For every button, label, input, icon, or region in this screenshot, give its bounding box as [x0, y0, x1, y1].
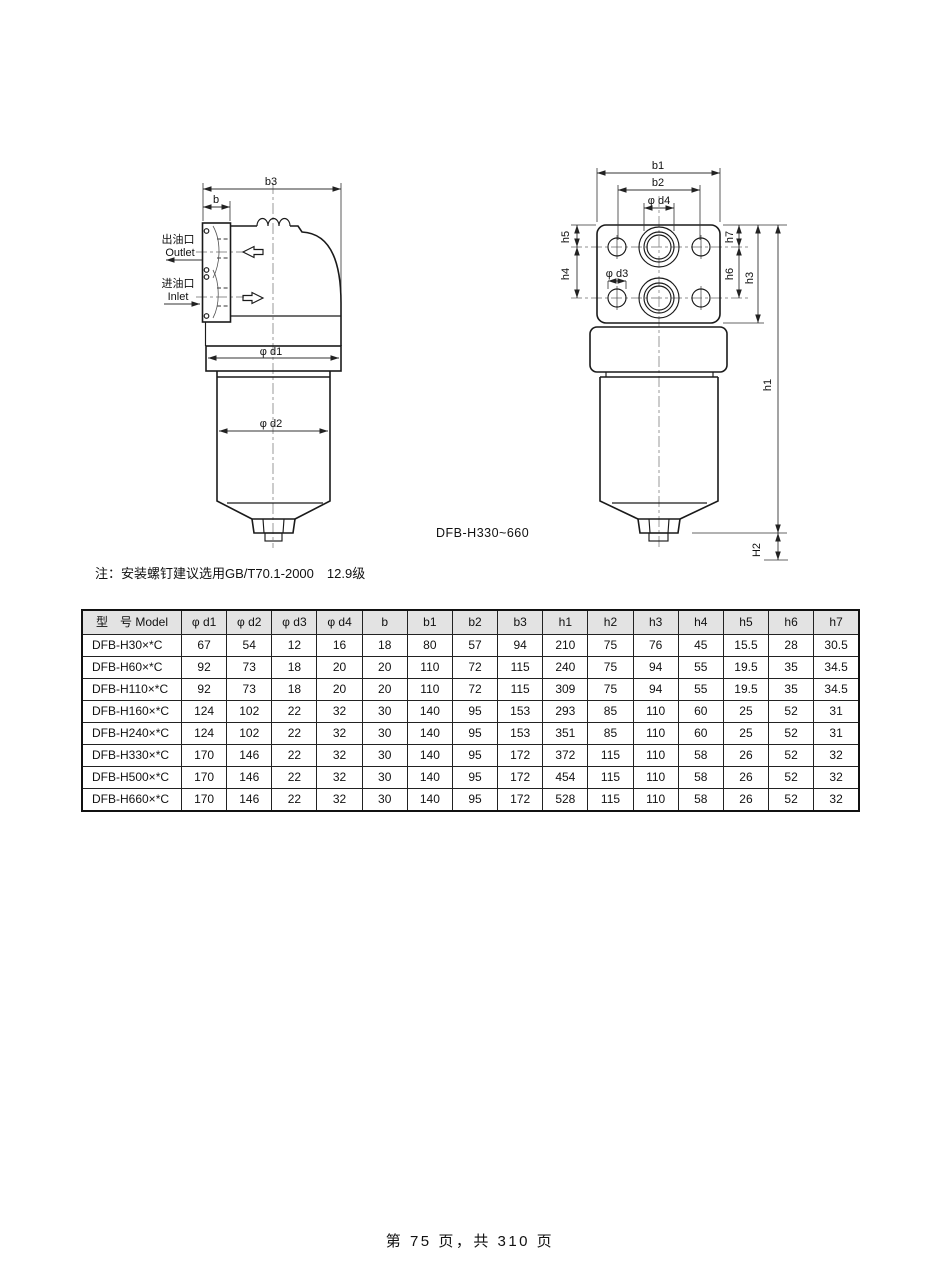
value-cell: 140 — [407, 789, 452, 812]
value-cell: 67 — [182, 635, 227, 657]
value-cell: 110 — [633, 789, 678, 812]
value-cell: 25 — [723, 701, 768, 723]
dim-label-b1: b1 — [652, 160, 664, 172]
value-cell: 95 — [452, 745, 497, 767]
value-cell: 57 — [452, 635, 497, 657]
value-cell: 75 — [588, 679, 633, 701]
value-cell: 146 — [227, 767, 272, 789]
value-cell: 12 — [272, 635, 317, 657]
figure-caption: DFB-H330~660 — [436, 526, 529, 540]
value-cell: 115 — [588, 789, 633, 812]
table-row: DFB-H30×*C675412161880579421075764515.52… — [82, 635, 859, 657]
col-header-b3: b3 — [498, 610, 543, 635]
value-cell: 75 — [588, 657, 633, 679]
value-cell: 309 — [543, 679, 588, 701]
value-cell: 18 — [362, 635, 407, 657]
head-front — [590, 327, 727, 372]
value-cell: 92 — [182, 657, 227, 679]
bolt-hole-icon — [204, 229, 209, 234]
dim-label-b2: b2 — [652, 177, 664, 189]
table-row: DFB-H500×*C17014622323014095172454115110… — [82, 767, 859, 789]
dim-label-h6: h6 — [724, 268, 736, 280]
value-cell: 26 — [723, 789, 768, 812]
value-cell: 30 — [362, 701, 407, 723]
value-cell: 170 — [182, 745, 227, 767]
value-cell: 140 — [407, 723, 452, 745]
value-cell: 54 — [227, 635, 272, 657]
col-header-d1: φ d1 — [182, 610, 227, 635]
value-cell: 32 — [317, 767, 362, 789]
value-cell: 210 — [543, 635, 588, 657]
value-cell: 95 — [452, 723, 497, 745]
table-row: DFB-H110×*C92731820201107211530975945519… — [82, 679, 859, 701]
value-cell: 31 — [814, 723, 859, 745]
value-cell: 28 — [769, 635, 814, 657]
value-cell: 102 — [227, 723, 272, 745]
port-bore-arcs — [213, 226, 219, 318]
dim-label-h4: h4 — [560, 268, 572, 280]
model-cell: DFB-H330×*C — [82, 745, 182, 767]
inlet-label-en: Inlet — [168, 291, 189, 303]
value-cell: 240 — [543, 657, 588, 679]
mounting-note: 注：安装螺钉建议选用GB/T70.1-2000 12.9级 — [95, 563, 365, 582]
col-header-d4: φ d4 — [317, 610, 362, 635]
value-cell: 34.5 — [814, 657, 859, 679]
model-cell: DFB-H110×*C — [82, 679, 182, 701]
top-and-front-view: b1 b2 φ d4 h5 h4 φ d3 h7 h6 — [560, 160, 788, 560]
col-header-h3: h3 — [633, 610, 678, 635]
value-cell: 30 — [362, 767, 407, 789]
dim-label-h5: h5 — [560, 231, 572, 243]
value-cell: 140 — [407, 767, 452, 789]
outlet-label-en: Outlet — [165, 247, 194, 259]
table-head: 型 号 Modelφ d1φ d2φ d3φ d4bb1b2b3h1h2h3h4… — [82, 610, 859, 635]
dim-label-d3: φ d3 — [606, 268, 628, 280]
value-cell: 153 — [498, 701, 543, 723]
value-cell: 293 — [543, 701, 588, 723]
value-cell: 30 — [362, 745, 407, 767]
value-cell: 19.5 — [723, 679, 768, 701]
value-cell: 110 — [633, 723, 678, 745]
col-header-b: b — [362, 610, 407, 635]
model-cell: DFB-H500×*C — [82, 767, 182, 789]
value-cell: 34.5 — [814, 679, 859, 701]
value-cell: 58 — [678, 767, 723, 789]
value-cell: 30 — [362, 789, 407, 812]
model-cell: DFB-H660×*C — [82, 789, 182, 812]
drain-plug-nub — [265, 533, 282, 541]
value-cell: 172 — [498, 767, 543, 789]
value-cell: 102 — [227, 701, 272, 723]
bolt-hole-icon — [204, 275, 209, 280]
top-nut — [257, 219, 290, 226]
value-cell: 146 — [227, 789, 272, 812]
value-cell: 76 — [633, 635, 678, 657]
value-cell: 85 — [588, 723, 633, 745]
value-cell: 94 — [633, 657, 678, 679]
table-row: DFB-H660×*C17014622323014095172528115110… — [82, 789, 859, 812]
col-header-b2: b2 — [452, 610, 497, 635]
value-cell: 20 — [362, 679, 407, 701]
col-header-h5: h5 — [723, 610, 768, 635]
value-cell: 22 — [272, 723, 317, 745]
value-cell: 22 — [272, 767, 317, 789]
value-cell: 372 — [543, 745, 588, 767]
value-cell: 60 — [678, 701, 723, 723]
value-cell: 20 — [317, 679, 362, 701]
value-cell: 94 — [498, 635, 543, 657]
value-cell: 52 — [769, 745, 814, 767]
dim-label-h3: h3 — [744, 272, 756, 284]
drain-plug-hex — [252, 519, 295, 533]
value-cell: 140 — [407, 701, 452, 723]
model-cell: DFB-H60×*C — [82, 657, 182, 679]
inlet-label-cn: 进油口 — [162, 276, 195, 290]
value-cell: 124 — [182, 701, 227, 723]
value-cell: 18 — [272, 679, 317, 701]
dim-label-b: b — [213, 194, 219, 206]
value-cell: 26 — [723, 767, 768, 789]
value-cell: 110 — [633, 701, 678, 723]
table-body: DFB-H30×*C675412161880579421075764515.52… — [82, 635, 859, 812]
value-cell: 124 — [182, 723, 227, 745]
value-cell: 55 — [678, 657, 723, 679]
col-header-h6: h6 — [769, 610, 814, 635]
model-cell: DFB-H160×*C — [82, 701, 182, 723]
value-cell: 72 — [452, 679, 497, 701]
value-cell: 22 — [272, 745, 317, 767]
head-outline — [290, 226, 341, 346]
value-cell: 32 — [814, 745, 859, 767]
table-row: DFB-H330×*C17014622323014095172372115110… — [82, 745, 859, 767]
value-cell: 172 — [498, 789, 543, 812]
col-header-d3: φ d3 — [272, 610, 317, 635]
value-cell: 110 — [633, 745, 678, 767]
dim-label-h2: H2 — [751, 543, 763, 557]
value-cell: 73 — [227, 657, 272, 679]
table-header-row: 型 号 Modelφ d1φ d2φ d3φ d4bb1b2b3h1h2h3h4… — [82, 610, 859, 635]
value-cell: 32 — [317, 745, 362, 767]
value-cell: 32 — [317, 701, 362, 723]
value-cell: 80 — [407, 635, 452, 657]
value-cell: 32 — [317, 723, 362, 745]
datasheet-page: b3 b φ d1 — [0, 0, 940, 1276]
value-cell: 52 — [769, 767, 814, 789]
value-cell: 115 — [588, 767, 633, 789]
value-cell: 153 — [498, 723, 543, 745]
outlet-label-cn: 出油口 — [162, 232, 195, 246]
value-cell: 94 — [633, 679, 678, 701]
value-cell: 30 — [362, 723, 407, 745]
value-cell: 351 — [543, 723, 588, 745]
value-cell: 52 — [769, 701, 814, 723]
table-row: DFB-H60×*C92731820201107211524075945519.… — [82, 657, 859, 679]
value-cell: 20 — [317, 657, 362, 679]
value-cell: 110 — [407, 679, 452, 701]
col-header-b1: b1 — [407, 610, 452, 635]
filter-bowl — [217, 371, 330, 519]
value-cell: 19.5 — [723, 657, 768, 679]
dimension-table: 型 号 Modelφ d1φ d2φ d3φ d4bb1b2b3h1h2h3h4… — [81, 609, 860, 812]
col-header-h1: h1 — [543, 610, 588, 635]
value-cell: 60 — [678, 723, 723, 745]
value-cell: 110 — [633, 767, 678, 789]
value-cell: 15.5 — [723, 635, 768, 657]
dim-label-d2: φ d2 — [260, 418, 282, 430]
col-header-h4: h4 — [678, 610, 723, 635]
value-cell: 85 — [588, 701, 633, 723]
value-cell: 58 — [678, 745, 723, 767]
value-cell: 95 — [452, 767, 497, 789]
value-cell: 454 — [543, 767, 588, 789]
technical-drawing: b3 b φ d1 — [0, 0, 940, 600]
value-cell: 75 — [588, 635, 633, 657]
value-cell: 26 — [723, 745, 768, 767]
value-cell: 52 — [769, 723, 814, 745]
value-cell: 73 — [227, 679, 272, 701]
value-cell: 115 — [498, 679, 543, 701]
flow-arrow-right-icon — [243, 293, 263, 304]
drain-plug-nub — [649, 533, 668, 541]
value-cell: 170 — [182, 789, 227, 812]
value-cell: 140 — [407, 745, 452, 767]
model-cell: DFB-H30×*C — [82, 635, 182, 657]
bolt-hole-icon — [204, 314, 209, 319]
bolt-hole-icon — [204, 268, 209, 273]
value-cell: 30.5 — [814, 635, 859, 657]
value-cell: 25 — [723, 723, 768, 745]
col-header-h2: h2 — [588, 610, 633, 635]
value-cell: 31 — [814, 701, 859, 723]
col-header-h7: h7 — [814, 610, 859, 635]
value-cell: 35 — [769, 679, 814, 701]
dim-label-d4: φ d4 — [648, 195, 670, 207]
value-cell: 22 — [272, 789, 317, 812]
value-cell: 115 — [498, 657, 543, 679]
value-cell: 32 — [317, 789, 362, 812]
value-cell: 172 — [498, 745, 543, 767]
left-side-view: b3 b φ d1 — [162, 176, 342, 548]
value-cell: 52 — [769, 789, 814, 812]
value-cell: 16 — [317, 635, 362, 657]
dim-label-h7: h7 — [724, 231, 736, 243]
value-cell: 55 — [678, 679, 723, 701]
value-cell: 170 — [182, 767, 227, 789]
value-cell: 95 — [452, 789, 497, 812]
value-cell: 32 — [814, 789, 859, 812]
table-row: DFB-H160×*C12410222323014095153293851106… — [82, 701, 859, 723]
dim-label-h1: h1 — [762, 379, 774, 391]
value-cell: 32 — [814, 767, 859, 789]
value-cell: 115 — [588, 745, 633, 767]
table-row: DFB-H240×*C12410222323014095153351851106… — [82, 723, 859, 745]
page-number: 第 75 页，共 310 页 — [0, 1230, 940, 1251]
value-cell: 528 — [543, 789, 588, 812]
value-cell: 146 — [227, 745, 272, 767]
dim-label-b3: b3 — [265, 176, 277, 188]
dim-label-d1: φ d1 — [260, 346, 282, 358]
value-cell: 18 — [272, 657, 317, 679]
value-cell: 58 — [678, 789, 723, 812]
value-cell: 110 — [407, 657, 452, 679]
col-header-model: 型 号 Model — [82, 610, 182, 635]
value-cell: 72 — [452, 657, 497, 679]
value-cell: 22 — [272, 701, 317, 723]
flow-arrow-left-icon — [243, 247, 263, 258]
value-cell: 95 — [452, 701, 497, 723]
value-cell: 92 — [182, 679, 227, 701]
col-header-d2: φ d2 — [227, 610, 272, 635]
value-cell: 20 — [362, 657, 407, 679]
model-cell: DFB-H240×*C — [82, 723, 182, 745]
value-cell: 45 — [678, 635, 723, 657]
value-cell: 35 — [769, 657, 814, 679]
